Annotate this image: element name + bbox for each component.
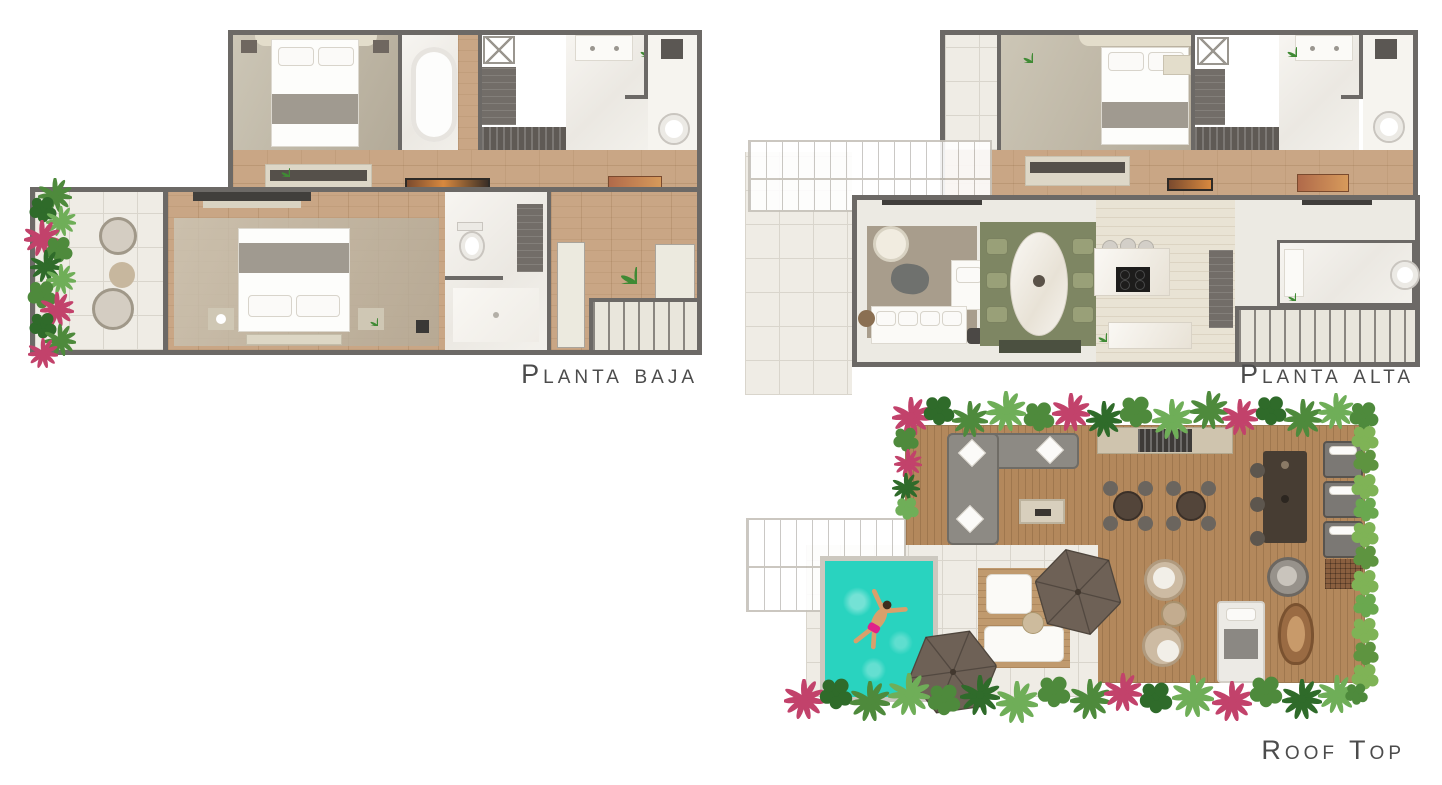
sun-lounger — [984, 626, 1064, 662]
plan-planta-alta: Planta alta — [745, 28, 1420, 398]
tv-panel — [193, 192, 311, 201]
wardrobe-rail — [482, 127, 566, 150]
bistro-set — [1105, 483, 1151, 529]
plan-label: Roof Top — [1261, 735, 1405, 766]
sink-counter — [1295, 35, 1353, 61]
lower-wing — [745, 140, 1420, 393]
sofa — [871, 306, 967, 344]
bed — [271, 39, 359, 147]
window-lintel — [882, 200, 982, 205]
upper-wing — [228, 30, 702, 207]
stair-hall — [551, 192, 697, 350]
shower — [453, 288, 539, 342]
dining-chair — [986, 238, 1008, 255]
papasan-chair — [1142, 625, 1184, 667]
lower-wing — [30, 187, 702, 355]
cooktop — [1116, 267, 1150, 292]
stool — [1250, 497, 1265, 512]
wall-sink — [661, 39, 683, 59]
chair — [1103, 516, 1118, 531]
plant-icon — [1277, 37, 1297, 57]
powder-room — [1277, 240, 1415, 306]
bathroom-tub-area — [402, 35, 478, 150]
plant-icon — [1089, 324, 1107, 342]
shower-skylight — [1197, 37, 1229, 65]
floor-lamp — [416, 320, 429, 333]
chair — [1138, 516, 1153, 531]
bistro-set — [1168, 483, 1214, 529]
main-block — [852, 195, 1420, 367]
toilet — [459, 231, 485, 261]
dining-chair — [1072, 306, 1094, 323]
lounge-chair — [99, 217, 137, 255]
dining-bench — [999, 340, 1081, 353]
toilet-room — [1363, 35, 1413, 150]
bar-table — [1263, 451, 1307, 543]
hedge-right — [1348, 423, 1382, 691]
tv-shelf — [203, 201, 301, 208]
toilet — [1373, 111, 1405, 143]
wall-sink — [1375, 39, 1397, 59]
stool — [1250, 463, 1265, 478]
bathroom-1 — [566, 35, 648, 150]
hanging-chair — [1267, 557, 1309, 597]
pouf — [1161, 601, 1187, 627]
dining-table — [1010, 232, 1068, 336]
plant-icon — [1013, 43, 1033, 63]
cabinet — [655, 244, 695, 300]
closet — [1195, 35, 1279, 150]
nightstand — [358, 308, 384, 330]
wardrobe — [482, 67, 516, 125]
window-lintel — [1302, 200, 1372, 205]
plant-icon — [362, 310, 378, 326]
planter-border-left — [892, 423, 922, 523]
chair — [1103, 481, 1118, 496]
nightstand — [208, 308, 234, 330]
chair — [1201, 481, 1216, 496]
plant-icon — [603, 250, 637, 284]
bathtub — [411, 47, 457, 142]
peacock-chair — [1278, 603, 1314, 665]
plant-icon — [272, 159, 290, 177]
vanity — [517, 204, 543, 272]
bedroom-2 — [168, 192, 445, 350]
closet — [482, 35, 566, 150]
nightstand — [373, 40, 389, 53]
bed — [238, 228, 350, 332]
papasan-chair — [1144, 559, 1186, 601]
nightstand — [241, 40, 257, 53]
plan-label: Planta baja — [521, 359, 698, 390]
staircase — [1235, 306, 1415, 362]
wood-ledge — [458, 35, 478, 150]
bench — [1163, 55, 1191, 75]
planter-border-bottom — [784, 665, 1369, 729]
plan-roof-top: Roof Top — [740, 393, 1415, 778]
vertical-garden — [20, 176, 90, 371]
armchair — [873, 226, 909, 262]
toilet — [1390, 260, 1420, 290]
stool — [1250, 531, 1265, 546]
toilet-room — [648, 35, 697, 150]
balcony — [945, 35, 997, 150]
kitchen-island — [1094, 248, 1170, 296]
plant-icon — [1280, 285, 1296, 301]
toilet — [658, 113, 690, 145]
bistro-table — [1176, 491, 1206, 521]
tall-cabinet — [1209, 250, 1233, 328]
sink-counter — [575, 35, 633, 61]
chair — [1201, 516, 1216, 531]
chair — [1138, 481, 1153, 496]
chair — [1166, 481, 1181, 496]
cabinet — [557, 242, 585, 348]
floor-lamp — [858, 310, 875, 327]
chair — [1166, 516, 1181, 531]
wall — [445, 276, 503, 280]
planter-border-top — [890, 387, 1380, 443]
sun-lounger — [986, 574, 1032, 614]
bistro-table — [1113, 491, 1143, 521]
kitchen-counter — [1108, 322, 1192, 349]
dining-chair — [1072, 238, 1094, 255]
bedroom-1 — [233, 35, 398, 150]
lounge-chair — [92, 288, 134, 330]
bedroom-3 — [1001, 35, 1191, 150]
bed-bench — [246, 334, 342, 345]
pouf — [109, 262, 135, 288]
dining-chair — [986, 272, 1008, 289]
bathroom-3 — [1279, 35, 1359, 150]
centerpiece — [1033, 275, 1045, 287]
shower-skylight — [483, 36, 515, 64]
dining-chair — [986, 306, 1008, 323]
plan-label: Planta alta — [1240, 359, 1414, 390]
wardrobe — [1195, 69, 1225, 125]
floor-plans-sheet: Planta baja — [0, 0, 1442, 785]
staircase — [589, 298, 697, 350]
fire-table — [1019, 499, 1065, 524]
bathroom-2 — [445, 192, 547, 350]
plan-planta-baja: Planta baja — [30, 28, 702, 398]
headboard — [1079, 35, 1204, 46]
dining-chair — [1072, 272, 1094, 289]
